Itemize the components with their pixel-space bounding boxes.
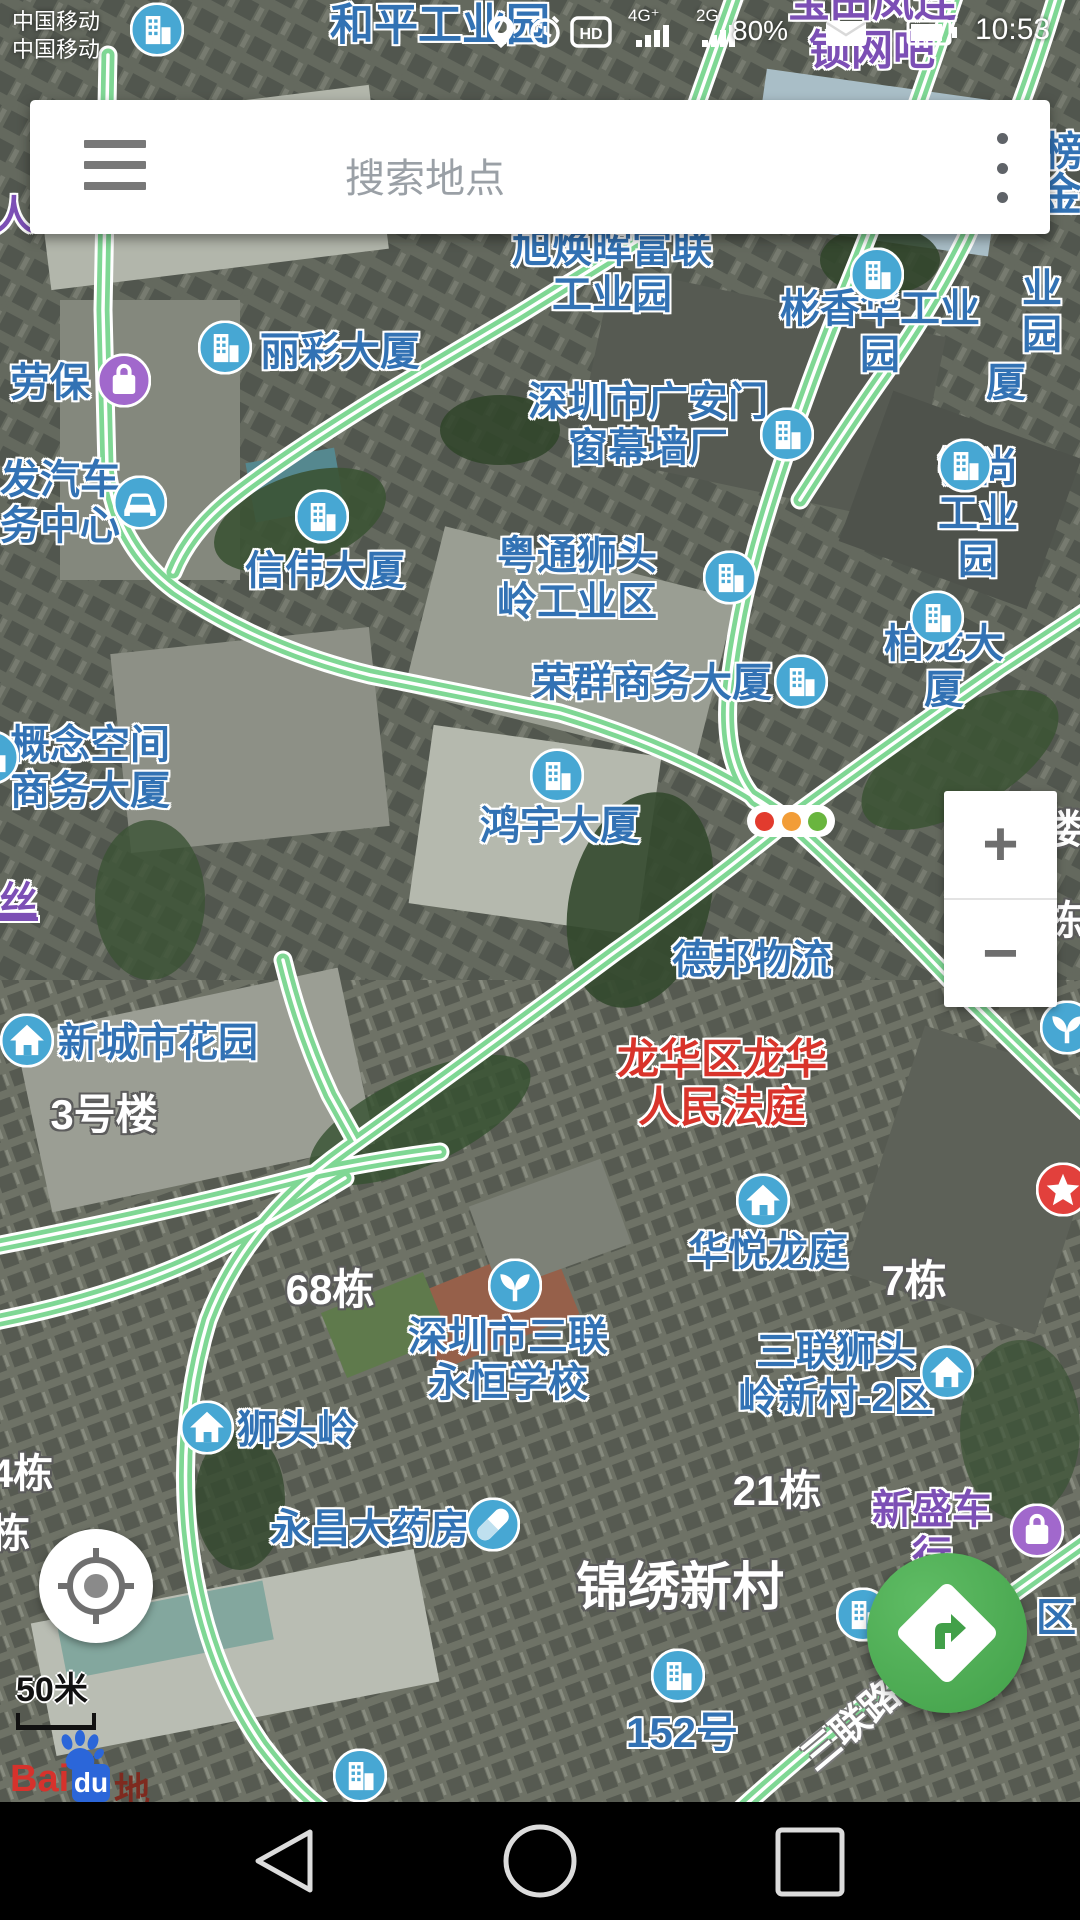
hd-badge-icon: HD (570, 16, 612, 48)
building-icon[interactable] (295, 490, 349, 549)
home-button[interactable] (500, 1821, 580, 1901)
poi-label[interactable]: 人 (0, 193, 34, 239)
building-icon[interactable] (938, 439, 992, 498)
baidu-logo: Bai du 地图 (10, 1736, 160, 1806)
route-button[interactable] (867, 1553, 1027, 1713)
poi-label[interactable]: 厦 (986, 360, 1026, 406)
bag-icon[interactable] (1010, 1504, 1064, 1563)
search-input[interactable]: 搜索地点 (345, 146, 505, 204)
building-icon[interactable] (198, 321, 252, 380)
poi-label[interactable]: 锦绣新村 (576, 1559, 784, 1619)
poi-label[interactable]: 4栋 (0, 1451, 53, 1497)
map-scale: 50米 (16, 1662, 96, 1730)
poi-label[interactable]: 劳保 (10, 360, 90, 406)
poi-label[interactable]: 新城市花园 (58, 1020, 258, 1066)
poi-label[interactable]: 152号 (626, 1709, 738, 1757)
signal-bars-icon (634, 22, 680, 48)
battery-percent-label: 80% (732, 15, 788, 47)
home-icon[interactable] (920, 1346, 974, 1405)
building-icon[interactable] (0, 731, 19, 790)
poi-label[interactable]: 旭焕晖富联 工业园 (512, 226, 712, 318)
poi-label[interactable]: 3号楼 (50, 1091, 157, 1139)
building-icon[interactable] (760, 408, 814, 467)
route-icon (895, 1581, 1000, 1686)
gps-pin-icon (486, 14, 516, 50)
poi-label[interactable]: 区 (1036, 1595, 1076, 1641)
star-icon[interactable] (1036, 1163, 1080, 1222)
home-icon[interactable] (180, 1401, 234, 1460)
logo-text-bai: Bai (10, 1758, 69, 1801)
poi-label[interactable]: 三联狮头 岭新村-2区 (738, 1329, 934, 1421)
poi-label[interactable]: 粤通狮头 岭工业区 (497, 533, 657, 625)
poi-label[interactable]: 21栋 (733, 1467, 822, 1515)
scale-label: 50米 (16, 1662, 96, 1711)
bag-icon[interactable] (97, 354, 151, 413)
clock-label: 10:53 (975, 13, 1050, 47)
poi-label[interactable]: 栋 (0, 1511, 30, 1557)
zoom-in-button[interactable]: + (944, 791, 1057, 898)
car-icon[interactable] (113, 476, 167, 535)
poi-label[interactable]: 德邦物流 (672, 937, 832, 983)
message-icon (824, 18, 868, 48)
home-icon[interactable] (0, 1014, 54, 1073)
building-icon[interactable] (333, 1749, 387, 1808)
building-icon[interactable] (910, 591, 964, 650)
poi-label[interactable]: 信伟大厦 (245, 548, 405, 594)
menu-icon[interactable] (84, 140, 148, 194)
building-icon[interactable] (651, 1649, 705, 1708)
plant-icon[interactable] (1040, 1001, 1080, 1060)
poi-label[interactable]: 发汽车 务中心 (0, 457, 120, 549)
my-location-button[interactable] (39, 1529, 153, 1643)
poi-label[interactable]: 深圳市三联 永恒学校 (408, 1314, 608, 1406)
poi-label[interactable]: 业园 (1022, 266, 1062, 358)
building-icon[interactable] (703, 551, 757, 610)
traffic-light-icon (747, 805, 835, 837)
logo-text-du: du (72, 1764, 110, 1802)
poi-label[interactable]: 概念空间 商务大厦 (10, 722, 170, 814)
poi-label[interactable]: 永昌大药房 (270, 1506, 470, 1552)
status-bar: 中国移动 中国移动 HD 4G⁺ 2G 80% (0, 0, 1080, 62)
recents-button[interactable] (772, 1827, 848, 1897)
poi-label[interactable]: 荣群商务大厦 (532, 660, 772, 706)
poi-label[interactable]: 深圳市广安门 窗幕墙厂 (528, 379, 768, 471)
svg-text:HD: HD (579, 26, 602, 43)
building-icon[interactable] (850, 248, 904, 307)
poi-label[interactable]: 鸿宇大厦 (480, 803, 640, 849)
home-icon[interactable] (736, 1174, 790, 1233)
poi-label[interactable]: 7栋 (881, 1257, 946, 1305)
carrier-label-2: 中国移动 (12, 32, 100, 64)
poi-label[interactable]: 丽彩大厦 (260, 329, 420, 375)
zoom-out-button[interactable]: − (944, 900, 1057, 1007)
poi-label[interactable]: 龙华区龙华 人民法庭 (617, 1036, 827, 1133)
alarm-clock-icon (528, 14, 562, 50)
poi-label[interactable]: 丝 (0, 879, 38, 925)
poi-label[interactable]: 68栋 (286, 1266, 375, 1314)
plant-icon[interactable] (488, 1259, 542, 1318)
poi-label[interactable]: 狮头岭 (237, 1407, 357, 1453)
pill-icon[interactable] (466, 1498, 520, 1557)
poi-label[interactable]: 华悦龙庭 (688, 1229, 848, 1275)
scale-bar (16, 1713, 96, 1730)
app-screen: 和平工业园宝田凤连锁网吧人榜金旭焕晖富联 工业园丽彩大厦彬香华工业园业园劳保厦深… (0, 0, 1080, 1920)
overflow-menu-icon[interactable] (982, 133, 1022, 203)
battery-icon (906, 19, 958, 46)
android-nav-bar (0, 1802, 1080, 1920)
back-button[interactable] (244, 1826, 324, 1896)
zoom-controls: + − (944, 791, 1057, 1007)
building-icon[interactable] (774, 655, 828, 714)
crosshair-icon (54, 1544, 138, 1628)
search-bar[interactable]: 搜索地点 (30, 100, 1050, 234)
building-icon[interactable] (530, 749, 584, 808)
